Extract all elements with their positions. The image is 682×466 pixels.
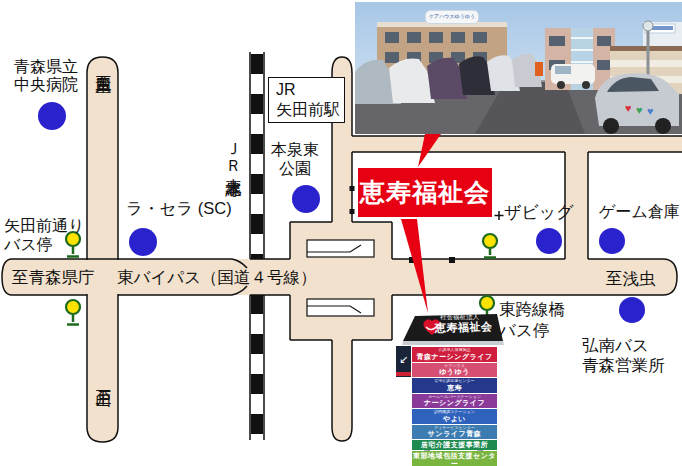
entrance-arrow-icon: ↙ [399, 353, 408, 365]
signboard-panel: デイサービスセンター サンライフ青森 [412, 425, 497, 440]
traffic-light-icon [483, 234, 497, 258]
to-kencho-label: 至青森県庁 [12, 268, 95, 287]
signboard-panel: 訪問看護ステーション やよい [412, 409, 497, 424]
svg-text:♥: ♥ [625, 102, 632, 114]
signboard-panel: 居宅介護支援センター 恵寿 [412, 378, 497, 393]
kosenkyo-bus-stop-label: 東跨線橋バス停 [499, 299, 565, 341]
to-toyama-label: 至戸山 [94, 377, 112, 380]
signboard-panel: ホームヘルパーステーション ナーシングライフ [412, 394, 497, 409]
park-label: 本泉東公園 [262, 140, 328, 178]
hospital-dot [38, 102, 66, 130]
heart-logo-car: ♥ ♥ ♥ [595, 73, 679, 134]
bypass-label: 東バイパス（国道４号線） [117, 268, 317, 287]
konan-bus-dot [619, 297, 645, 323]
the-big-dot [536, 228, 562, 254]
to-yaeda-label: 至八重田 [94, 63, 112, 67]
signboard-photo: 社会福祉法人 恵寿福祉会 ↙ 介護老人保健施設 青森ナーシングライフ ケアハウス… [393, 300, 508, 466]
game-warehouse-dot [599, 228, 625, 254]
facility-name-box: 恵寿福祉会 [358, 168, 492, 217]
parking-entrance-sign: ↙ [396, 346, 411, 377]
la-sera-dot [129, 228, 157, 256]
signboard-panel: 介護老人保健施設 青森ナーシングライフ [412, 347, 497, 362]
signboard-panel: ケアハウス ゆうゆう [412, 363, 497, 378]
game-warehouse-label: ゲーム倉庫 [599, 203, 680, 221]
svg-text:♥: ♥ [636, 104, 643, 116]
signboard-panel: 居宅介護支援事業所 [412, 440, 497, 450]
facility-photo-art: ♥ ♥ ♥ [355, 2, 682, 134]
traffic-light-icon [66, 300, 80, 325]
jr-line-label: ＪＲ東北本線 [224, 132, 242, 170]
yadamae-bus-stop-label: 矢田前通りバス停 [4, 216, 84, 254]
konan-bus-office-label: 弘南バス青森営業所 [582, 335, 665, 375]
facility-photo: ♥ ♥ ♥ ケアハウスゆうゆう [355, 2, 682, 134]
access-map: 青森県立中央病院 至八重田 JR矢田前駅 ＪＲ東北本線 本泉東公園 ラ・セラ (… [0, 0, 682, 466]
signboard-panel: 東部地域包括支援センター [412, 451, 497, 466]
signboard-panels: 介護老人保健施設 青森ナーシングライフ ケアハウス ゆうゆう 居宅介護支援センタ… [412, 347, 497, 466]
signboard-header-main: 恵寿福祉会 [435, 319, 493, 336]
hospital-label: 青森県立中央病院 [14, 58, 78, 95]
to-asamushi-label: 至浅虫 [606, 269, 656, 288]
parking-sign-stripe [396, 372, 411, 376]
rooftop-sign: ケアハウスゆうゆう [425, 10, 479, 24]
railway-jr-tohoku-line [250, 52, 264, 440]
park-dot [292, 185, 320, 213]
svg-text:♥: ♥ [647, 105, 654, 117]
station-label: JR矢田前駅 [268, 77, 345, 123]
la-sera-label: ラ・セラ (SC) [126, 199, 232, 218]
the-big-label: ザビッグ [504, 203, 574, 223]
